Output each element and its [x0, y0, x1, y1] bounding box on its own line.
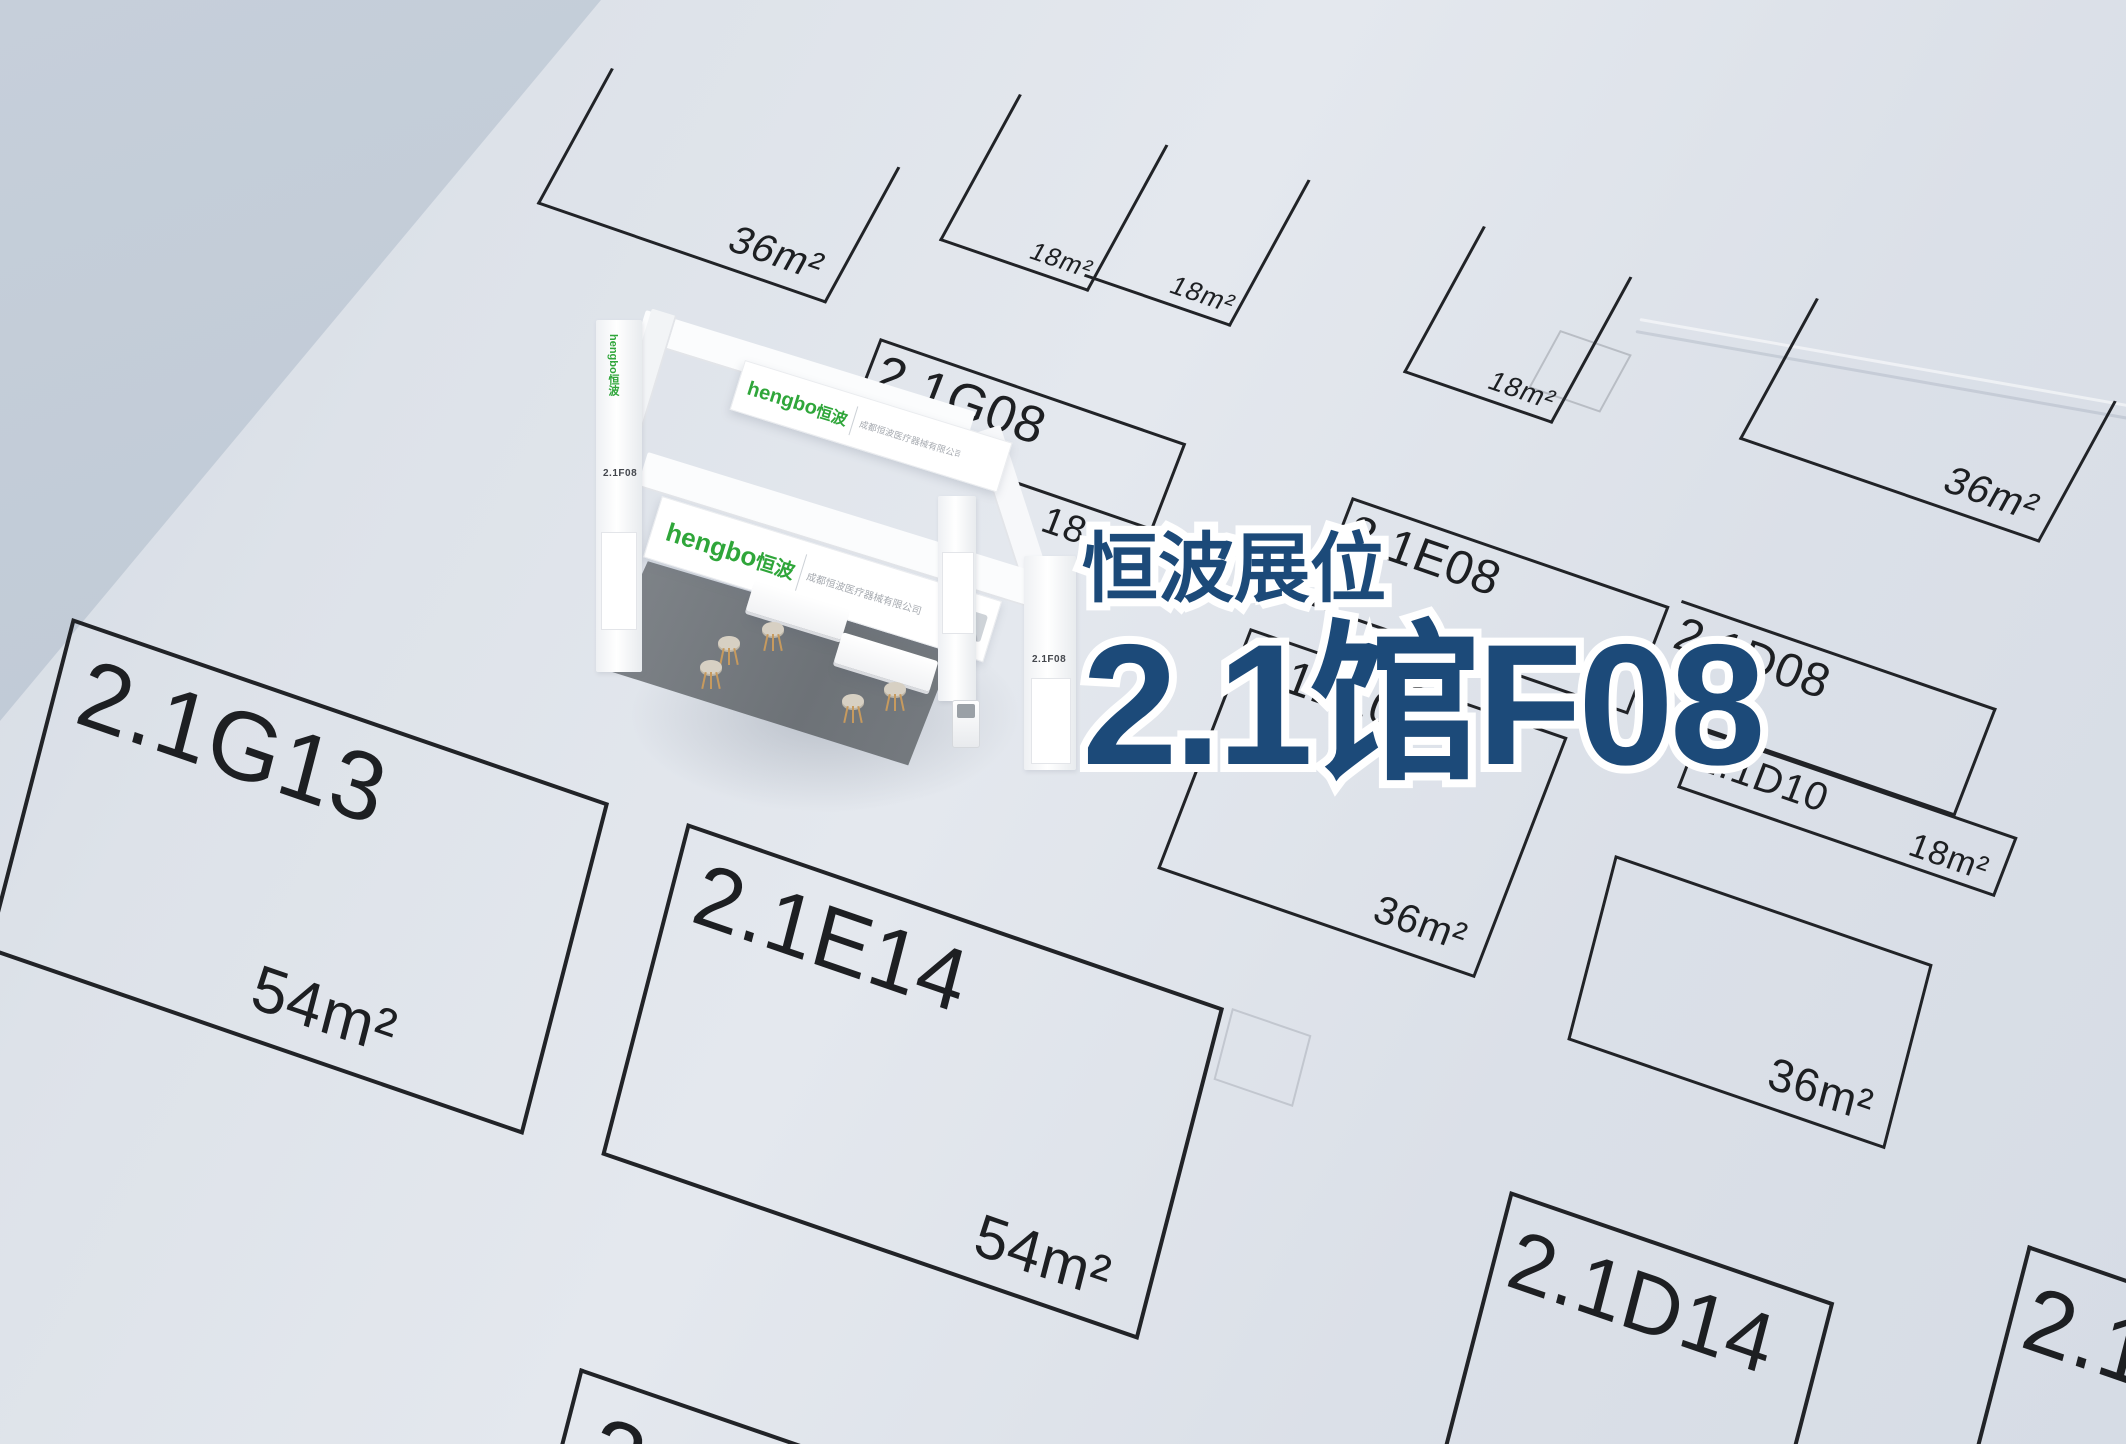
booth-pillar-left: hengbo恒波 2.1F08 [596, 320, 642, 672]
brand-logo-cjk: 恒波 [813, 398, 851, 430]
headline-subtitle: 恒波展位 恒波展位 [1082, 528, 1761, 612]
pillar-poster [1031, 678, 1071, 764]
booth-number-label: 2.1F08 [1032, 654, 1066, 665]
pillar-poster [601, 532, 637, 630]
exhibition-floorplan-poster: 36m² 18m² 18m² 18m² 36m² 2.1G08 18m² 2.1… [0, 0, 2126, 1444]
brand-logo-cjk: 恒波 [752, 545, 799, 585]
bar-stool [700, 660, 722, 674]
brand-logo-latin: hengbo [744, 377, 820, 420]
pillar-poster [942, 552, 974, 634]
headline: 恒波展位 恒波展位 2.1馆F08 2.1馆F08 [1082, 528, 1761, 793]
logo-divider [849, 406, 859, 435]
company-name-text: 成都恒波医疗器械有限公司 [858, 417, 962, 460]
booth-id-label: 2.1 [2013, 1266, 2126, 1410]
headline-subtitle-text: 恒波展位 [1082, 527, 1386, 612]
booth-pillar-back-right [938, 496, 976, 701]
booth-pillar-front-right: 2.1F08 [1024, 556, 1076, 770]
pillar-vertical-logo: hengbo恒波 [605, 334, 621, 396]
bar-stool [884, 682, 906, 696]
headline-main-text: 2.1馆F08 [1082, 609, 1761, 801]
bar-stool [718, 636, 740, 650]
brand-logo-latin: hengbo [662, 516, 761, 573]
booth-number-label: 2.1F08 [603, 468, 637, 479]
headline-hall-number: 2.1馆F08 2.1馆F08 [1082, 618, 1761, 793]
bar-stool [762, 622, 784, 636]
bar-stool [842, 694, 864, 708]
medical-device [952, 700, 980, 748]
